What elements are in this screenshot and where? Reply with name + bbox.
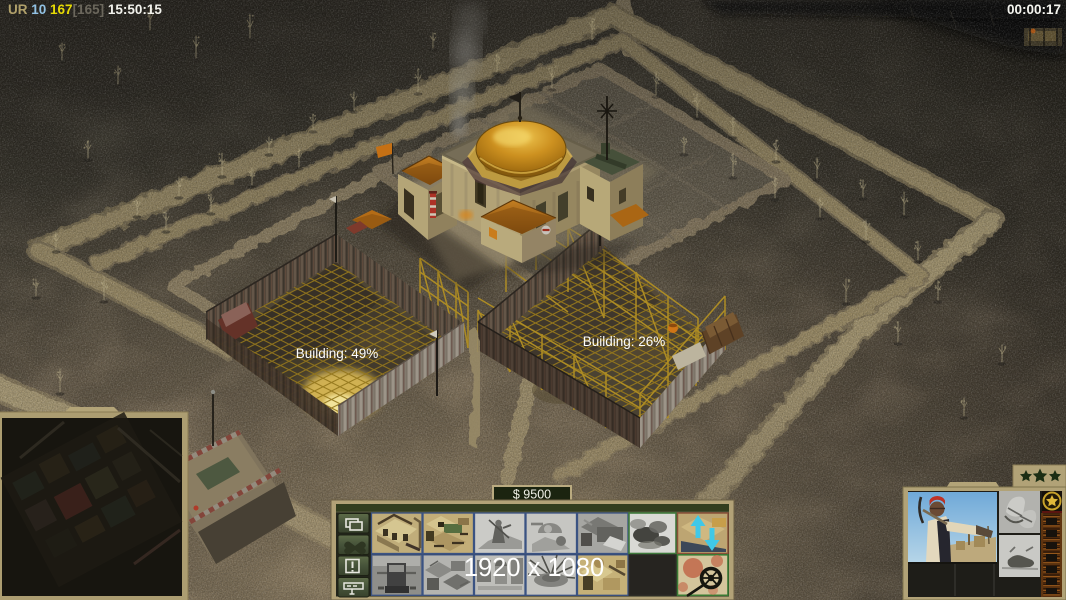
svg-text:Building: 49%: Building: 49% bbox=[296, 346, 379, 361]
svg-text:UR 10 167[165] 15:50:15: UR 10 167[165] 15:50:15 bbox=[8, 2, 162, 17]
svg-text:$ 9500: $ 9500 bbox=[513, 488, 551, 502]
svg-text:1920 x 1080: 1920 x 1080 bbox=[464, 554, 604, 582]
svg-text:Building: 26%: Building: 26% bbox=[583, 334, 666, 349]
svg-text:00:00:17: 00:00:17 bbox=[1007, 2, 1061, 17]
